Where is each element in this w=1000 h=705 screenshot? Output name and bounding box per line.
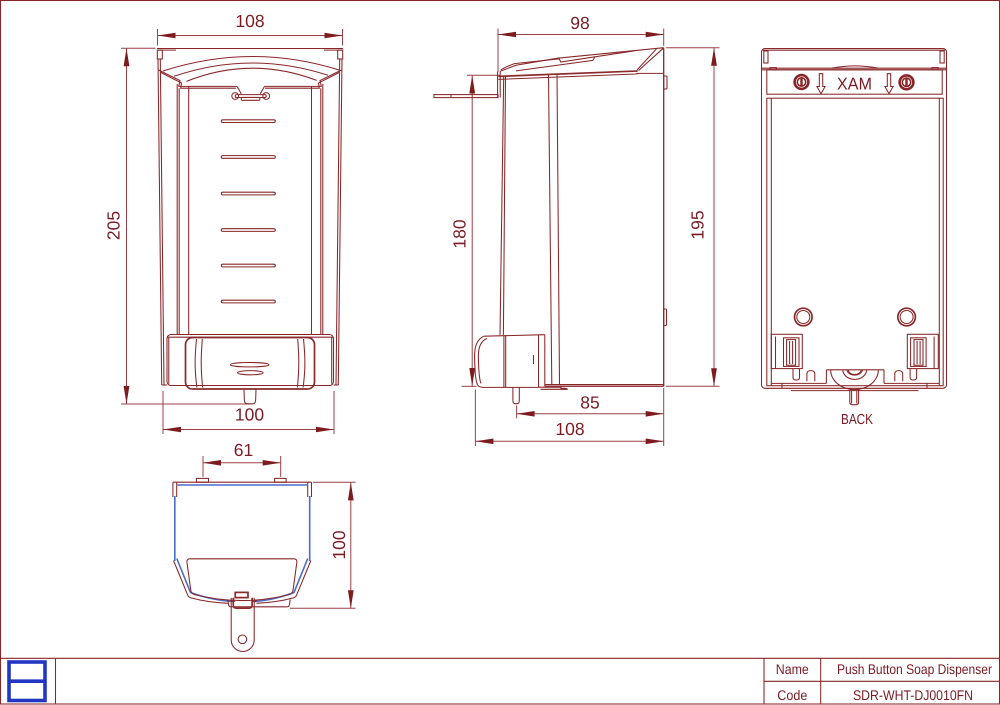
svg-text:108: 108	[235, 11, 264, 31]
svg-text:MAX: MAX	[837, 75, 872, 94]
svg-text:Code: Code	[777, 687, 807, 703]
svg-text:180: 180	[450, 219, 470, 248]
svg-text:Name: Name	[776, 661, 809, 677]
svg-text:195: 195	[688, 210, 708, 239]
svg-text:Push Button Soap Dispenser: Push Button Soap Dispenser	[837, 661, 992, 677]
svg-text:100: 100	[329, 530, 349, 559]
svg-text:108: 108	[555, 419, 584, 439]
svg-text:61: 61	[234, 440, 253, 460]
svg-text:98: 98	[570, 13, 589, 33]
svg-text:BACK: BACK	[841, 412, 873, 428]
svg-text:85: 85	[580, 392, 599, 412]
svg-text:100: 100	[235, 405, 264, 425]
svg-text:SDR-WHT-DJ0010FN: SDR-WHT-DJ0010FN	[853, 687, 973, 703]
svg-text:205: 205	[104, 211, 124, 240]
